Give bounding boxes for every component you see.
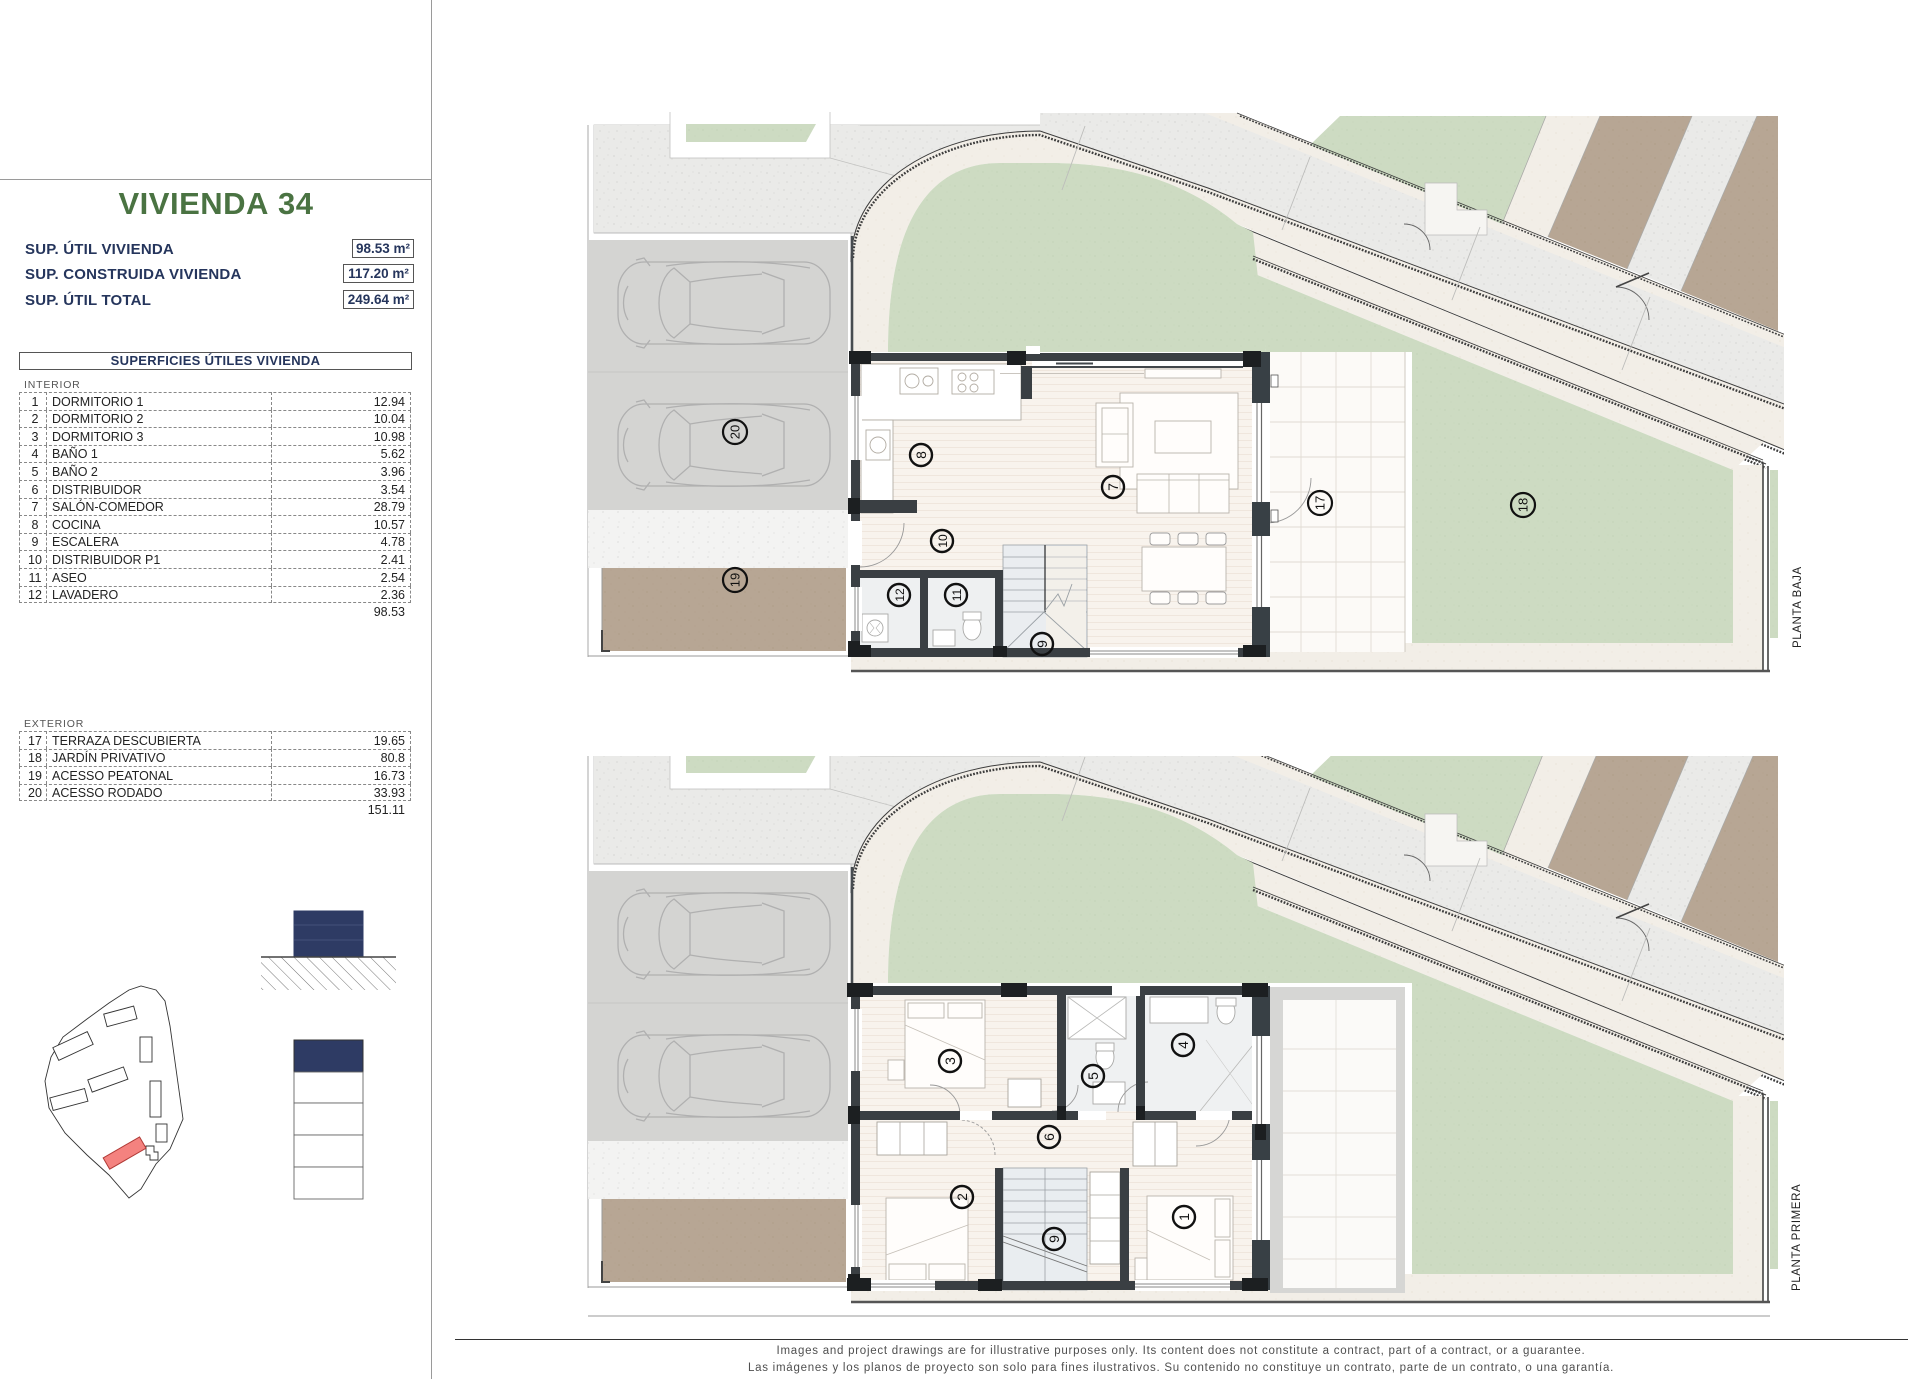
svg-text:20: 20 [728,425,743,439]
svg-text:1: 1 [1176,1213,1192,1221]
svg-text:8: 8 [913,451,929,459]
svg-text:9: 9 [1046,1235,1062,1243]
svg-text:17: 17 [1313,496,1328,510]
svg-text:PLANTA BAJA: PLANTA BAJA [1792,566,1804,648]
svg-text:2: 2 [954,1193,970,1201]
svg-text:PLANTA PRIMERA: PLANTA PRIMERA [1791,1184,1803,1291]
svg-text:19: 19 [728,573,743,587]
svg-text:3: 3 [942,1057,958,1065]
svg-text:10: 10 [936,534,950,548]
svg-text:4: 4 [1175,1041,1191,1049]
svg-text:12: 12 [893,588,907,602]
svg-text:9: 9 [1034,640,1050,648]
svg-text:5: 5 [1085,1072,1101,1080]
svg-text:7: 7 [1105,483,1121,491]
svg-text:11: 11 [950,588,964,601]
svg-text:18: 18 [1516,498,1531,512]
svg-text:6: 6 [1041,1133,1057,1141]
